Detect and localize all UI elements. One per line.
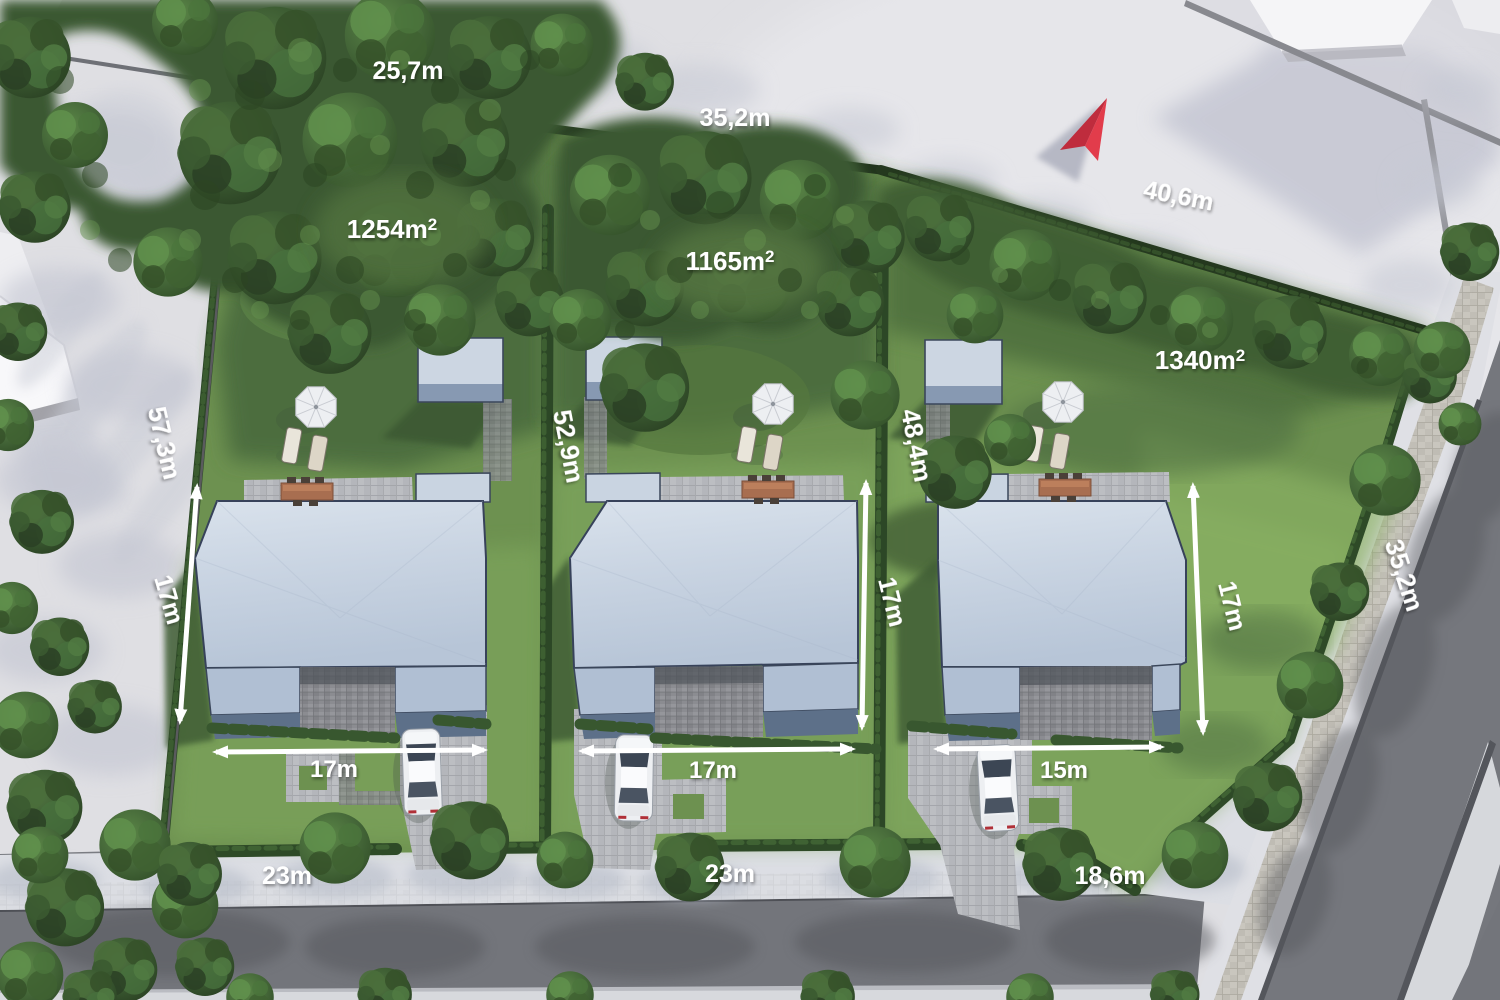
svg-text:1254m2: 1254m2 (347, 214, 437, 244)
svg-text:1165m2: 1165m2 (686, 246, 775, 276)
svg-text:35,2m: 35,2m (700, 104, 771, 132)
svg-text:23m: 23m (262, 862, 312, 890)
svg-text:23m: 23m (705, 860, 755, 888)
svg-text:15m: 15m (1040, 757, 1088, 784)
svg-text:18,6m: 18,6m (1075, 862, 1146, 890)
svg-text:25,7m: 25,7m (373, 57, 444, 85)
svg-text:17m: 17m (310, 756, 358, 783)
svg-text:17m: 17m (689, 757, 737, 784)
svg-text:1340m2: 1340m2 (1155, 345, 1245, 375)
